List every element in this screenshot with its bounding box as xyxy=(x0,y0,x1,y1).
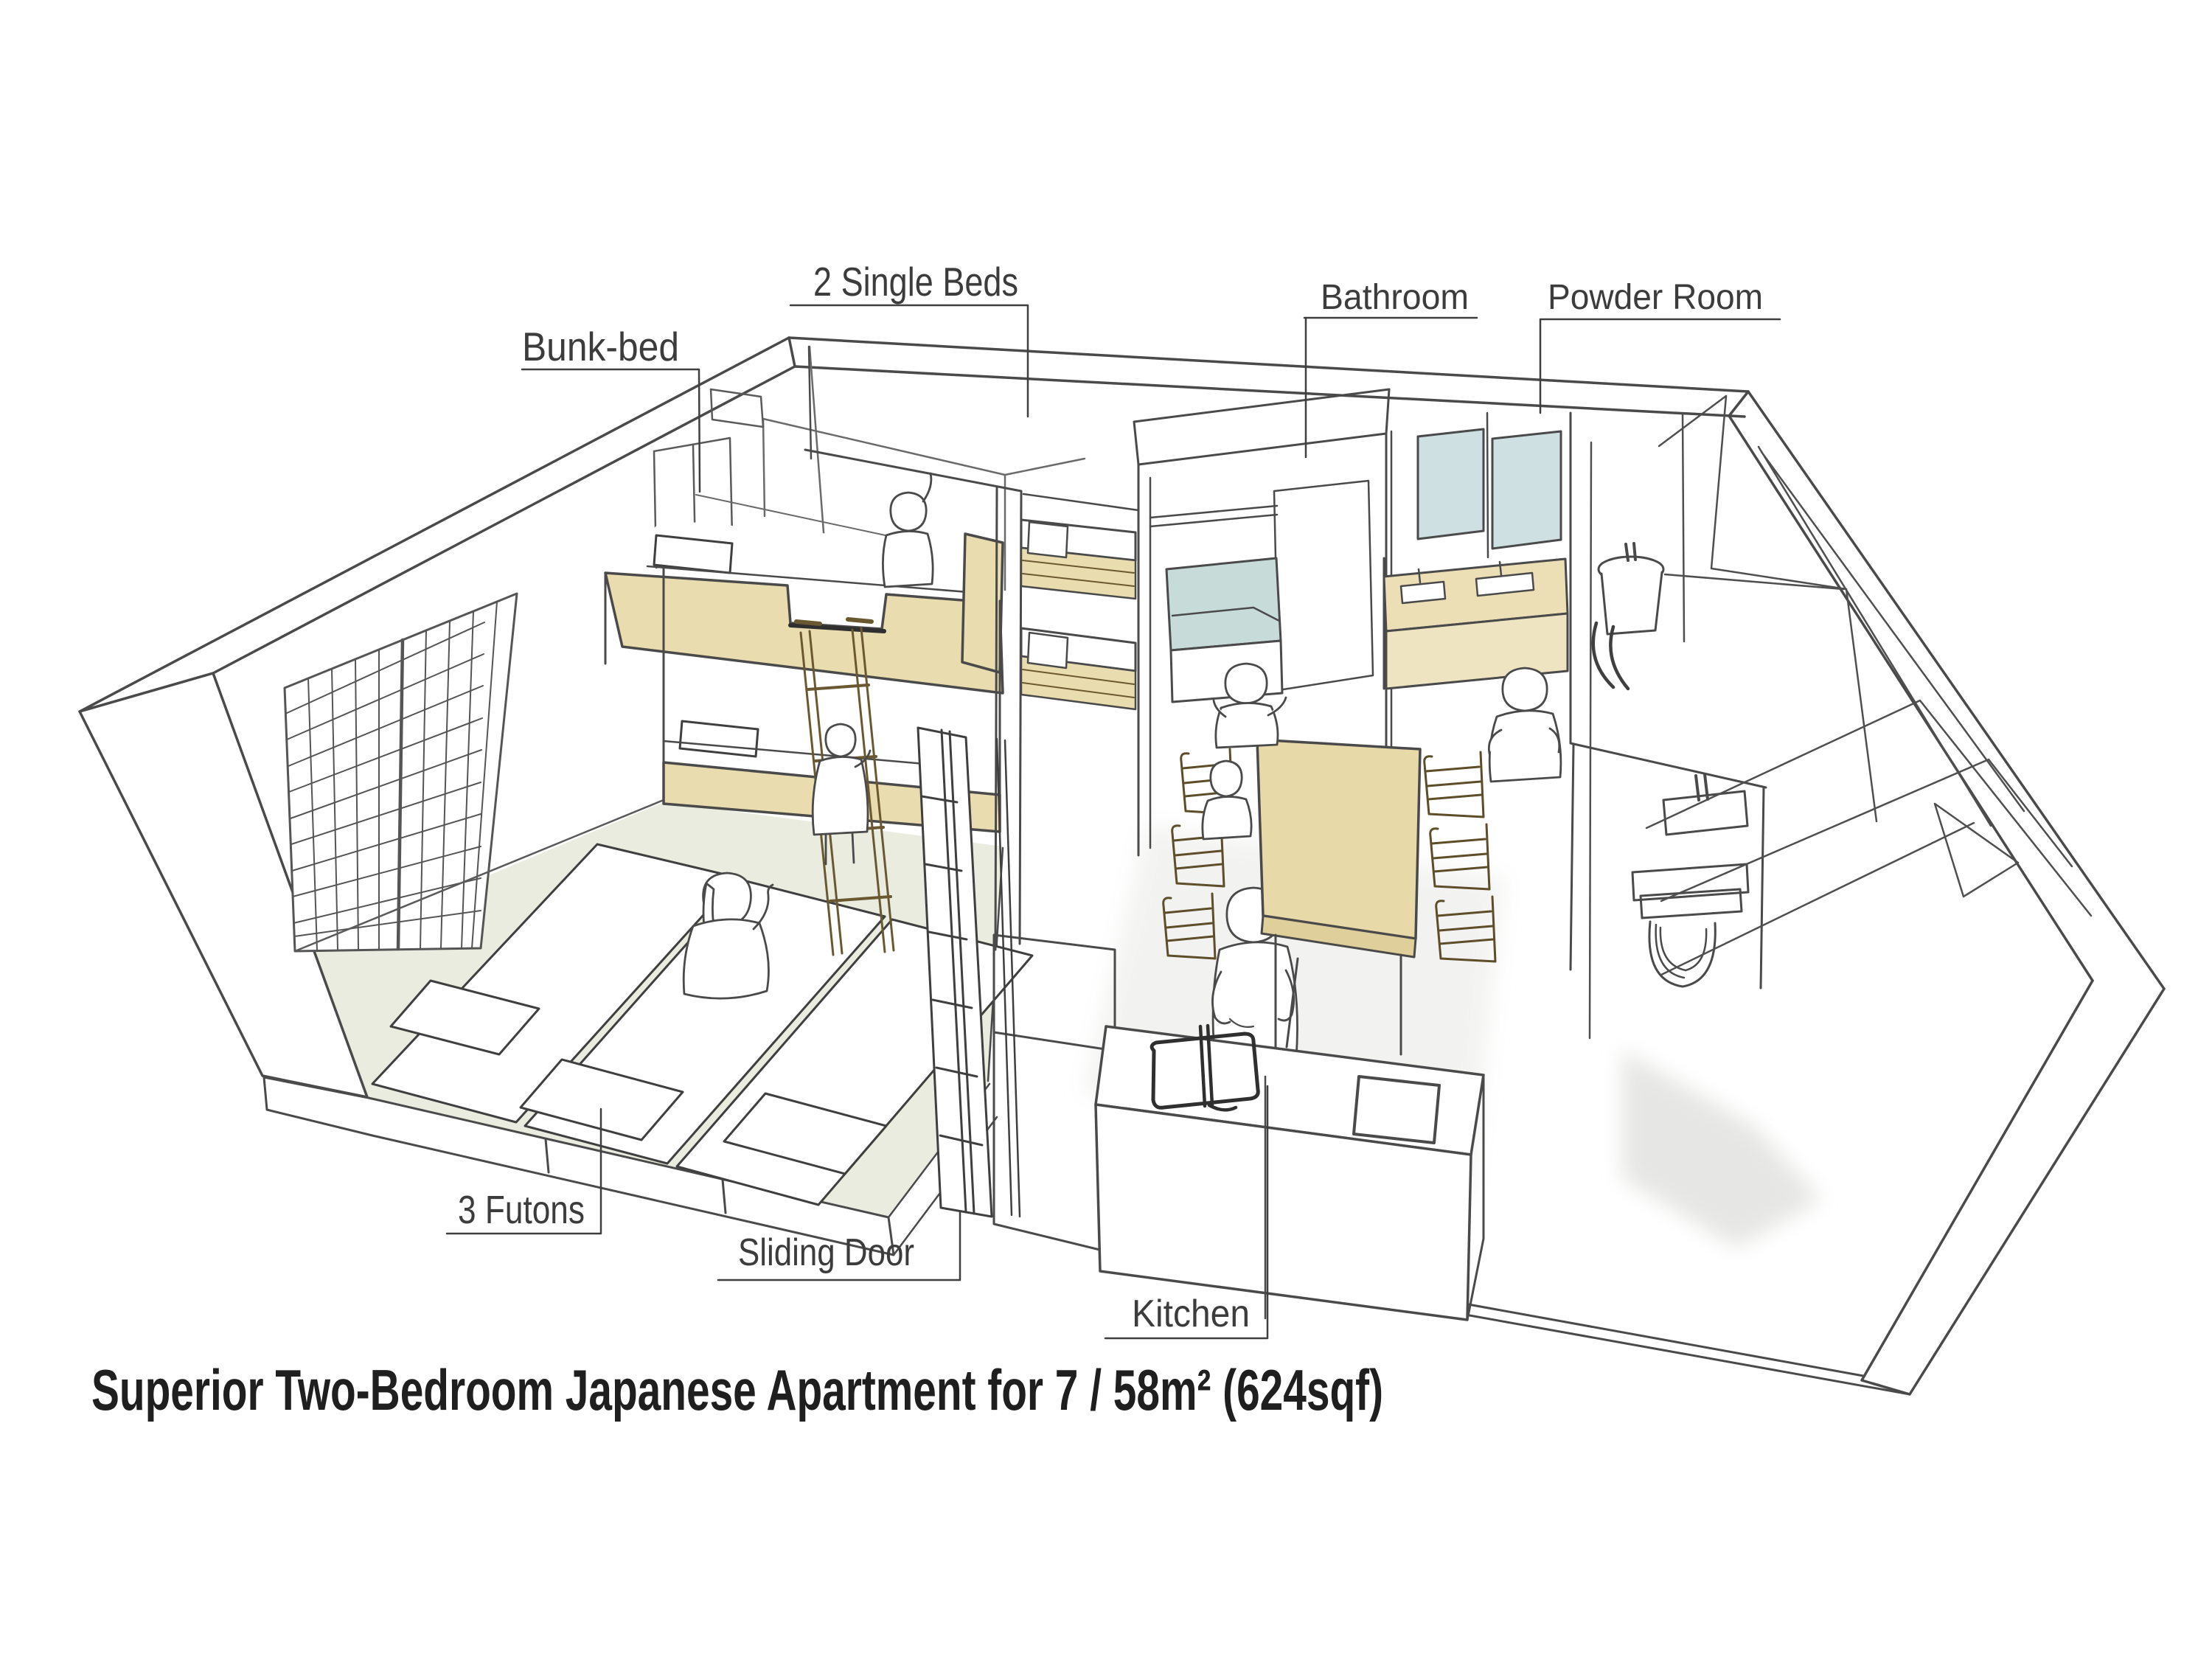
svg-text:2 Single Beds: 2 Single Beds xyxy=(813,259,1018,305)
svg-text:Sliding Door: Sliding Door xyxy=(738,1231,914,1274)
svg-text:Bathroom: Bathroom xyxy=(1321,278,1469,317)
svg-text:Kitchen: Kitchen xyxy=(1132,1293,1250,1335)
svg-text:Superior Two-Bedroom Japanese: Superior Two-Bedroom Japanese Apartment … xyxy=(91,1357,1383,1422)
svg-text:Powder Room: Powder Room xyxy=(1548,278,1763,317)
svg-text:3 Futons: 3 Futons xyxy=(458,1188,585,1232)
svg-text:Bunk-bed: Bunk-bed xyxy=(522,324,679,369)
